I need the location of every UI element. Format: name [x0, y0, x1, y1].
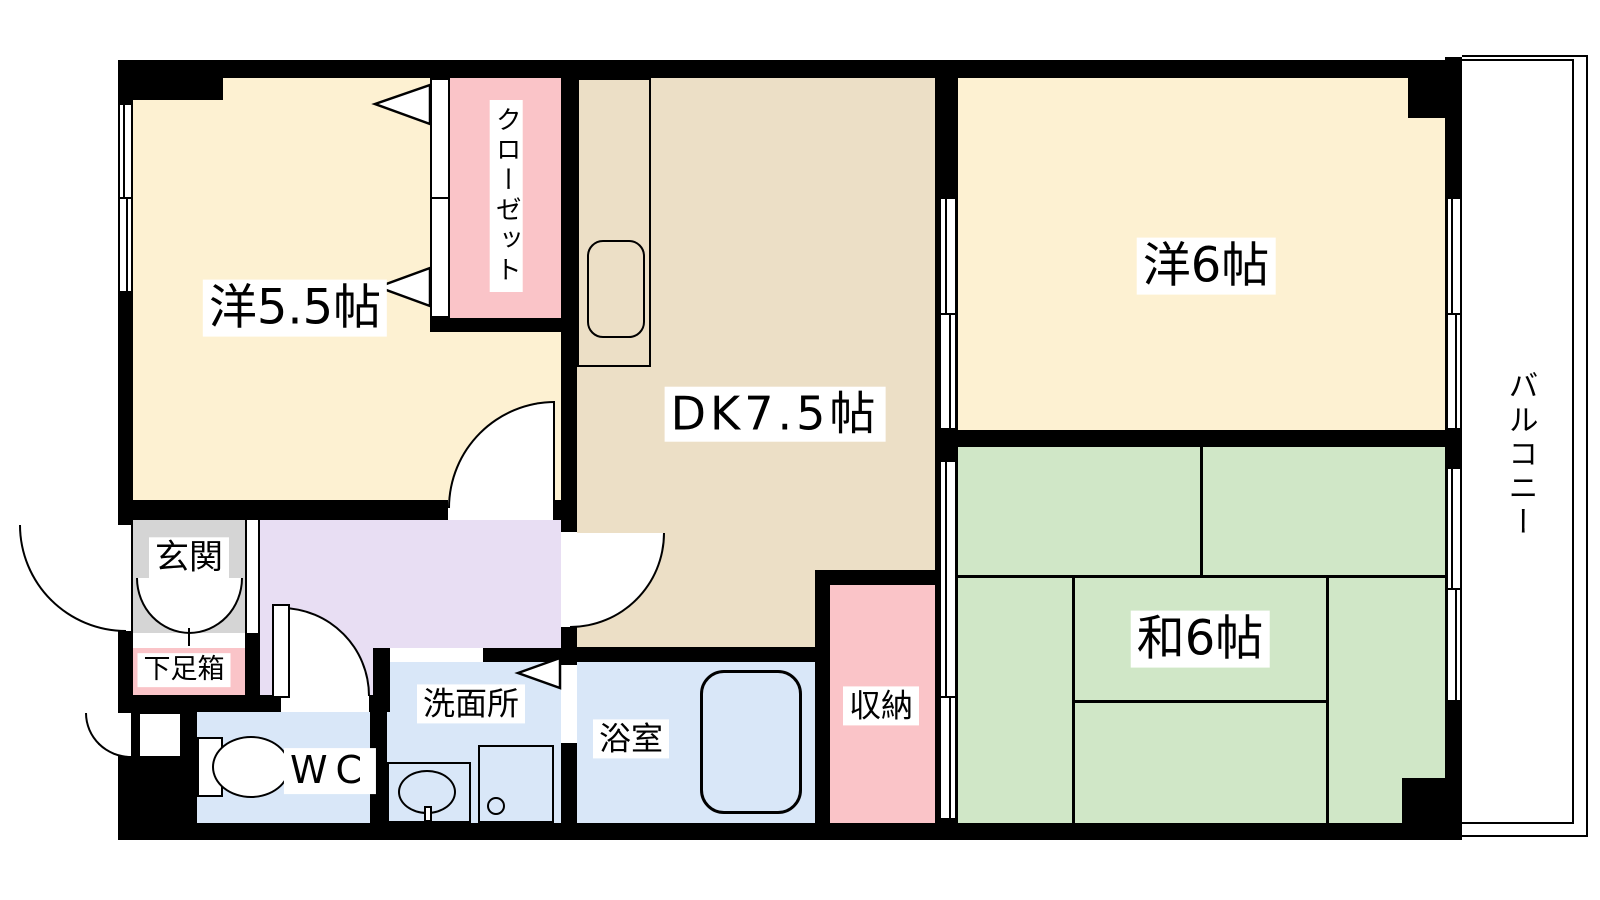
- floor-plan: 洋5.5帖 クローゼット DK7.5帖 洋6帖 バルコニー 和6帖 収納 玄関 …: [0, 0, 1600, 900]
- room-label-shoe-cabinet: 下足箱: [138, 653, 231, 687]
- closet-folding-door-icon: [375, 85, 430, 124]
- room-label-closet: クローゼット: [490, 100, 523, 292]
- door-symbols-overlay: [0, 0, 1600, 900]
- room-label-storage: 収納: [843, 686, 919, 725]
- room-label-west-5-5: 洋5.5帖: [203, 280, 387, 337]
- room-label-dk: DK7.5帖: [665, 387, 886, 442]
- room-label-wc: WC: [284, 748, 376, 794]
- room-label-bathroom: 浴室: [593, 719, 669, 758]
- room-label-japanese-6: 和6帖: [1131, 611, 1270, 668]
- room-label-balcony: バルコニー: [1502, 364, 1539, 546]
- room-label-entrance: 玄関: [149, 537, 229, 578]
- room-label-washroom: 洗面所: [417, 684, 525, 723]
- room-label-west-6: 洋6帖: [1137, 238, 1276, 295]
